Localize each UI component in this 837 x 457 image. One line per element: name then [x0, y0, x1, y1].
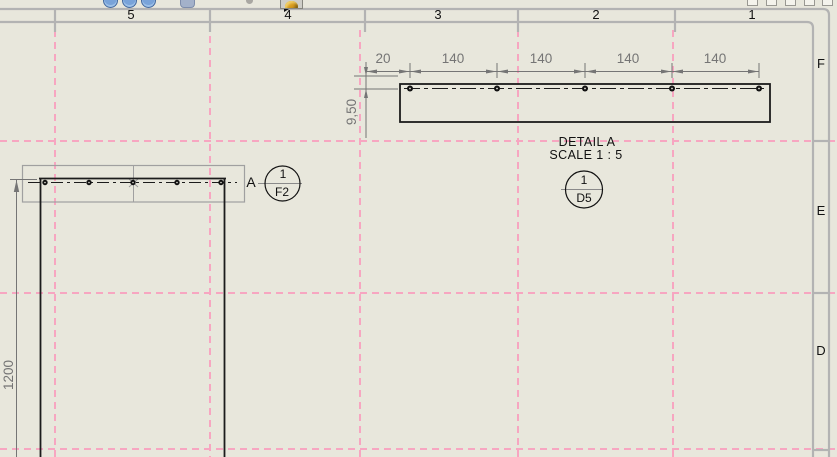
callout-d5-bottom[interactable]: D5 [576, 192, 591, 204]
zone-column-label-3: 3 [434, 8, 441, 21]
zone-row-label-f: F [817, 57, 825, 70]
toolbar-icon-square-4[interactable] [804, 0, 815, 6]
dimension-lines[interactable] [354, 62, 759, 138]
dim-length-1200[interactable]: 1200 [2, 360, 16, 390]
detail-label-a[interactable]: A [246, 175, 255, 190]
callout-f2-bottom[interactable]: F2 [275, 186, 289, 198]
zone-column-label-2: 2 [592, 8, 599, 21]
sheet-border-frame [0, 9, 829, 457]
toolbar-icon-square-3[interactable] [785, 0, 796, 6]
toolbar-icon-square-5[interactable] [822, 0, 833, 6]
zone-row-label-e: E [817, 204, 826, 217]
zone-column-label-1: 1 [748, 8, 755, 21]
toolbar-icon-square-2[interactable] [766, 0, 777, 6]
detail-view-scale[interactable]: SCALE 1 : 5 [549, 149, 622, 162]
drawing-viewport[interactable]: 5 4 3 2 1 F E D 20 140 140 140 140 9,50 … [0, 0, 837, 457]
dimension-1200-lines[interactable] [10, 180, 37, 457]
dim-hole-pitch-1[interactable]: 140 [442, 52, 465, 66]
drawing-canvas[interactable] [0, 0, 837, 457]
main-view[interactable] [10, 166, 302, 457]
zone-grid-pink-lines [0, 30, 837, 457]
callout-d5-top[interactable]: 1 [581, 174, 588, 186]
dim-hole-pitch-3[interactable]: 140 [617, 52, 640, 66]
toolbar-icon-glyph[interactable] [180, 0, 195, 8]
callout-f2-top[interactable]: 1 [280, 168, 287, 180]
dimension-1200-arrow [14, 180, 19, 192]
zone-row-label-d: D [816, 344, 825, 357]
dim-hole-pitch-2[interactable]: 140 [530, 52, 553, 66]
toolbar-icon-square-1[interactable] [747, 0, 758, 6]
zone-column-label-5: 5 [127, 8, 134, 21]
dim-hole-pitch-4[interactable]: 140 [704, 52, 727, 66]
part-outline[interactable] [39, 179, 226, 457]
dim-depth[interactable]: 9,50 [345, 99, 359, 125]
dim-edge-offset[interactable]: 20 [375, 52, 390, 66]
zone-column-label-4: 4 [284, 8, 291, 21]
